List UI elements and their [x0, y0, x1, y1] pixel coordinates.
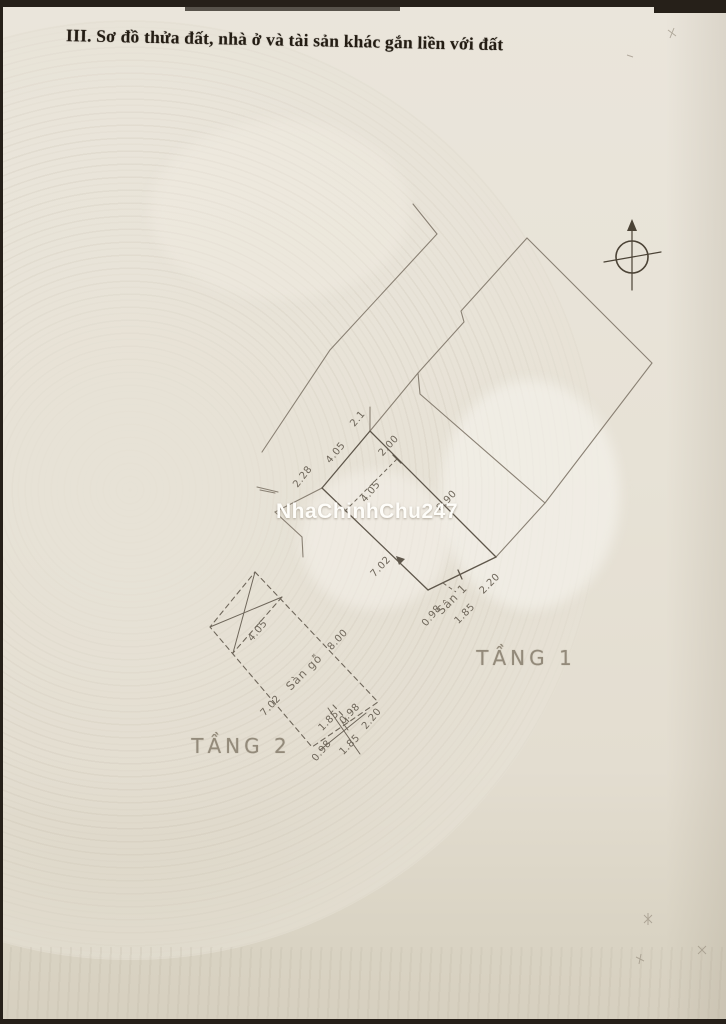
paper-specks: [627, 28, 706, 964]
floor2-name: TẦNG 2: [191, 734, 290, 758]
certificate-page-photo: { "page": { "title": "III. Sơ đồ thửa đấ…: [0, 0, 726, 1024]
photo-edge-bottom: [0, 1019, 726, 1024]
floor2-cross-marks: [210, 572, 366, 754]
photo-edge-top: [0, 0, 726, 7]
photo-edge-left: [0, 0, 3, 1024]
photo-edge-top-bump: [185, 7, 400, 11]
north-arrow-icon: [604, 219, 661, 290]
watermark-text: NhaChinhChu247: [276, 500, 458, 524]
photo-edge-top-right: [654, 0, 726, 13]
floor1-name: TẦNG 1: [476, 646, 575, 670]
floor2-outline: [210, 572, 378, 747]
floor1-partitions: [343, 459, 456, 592]
